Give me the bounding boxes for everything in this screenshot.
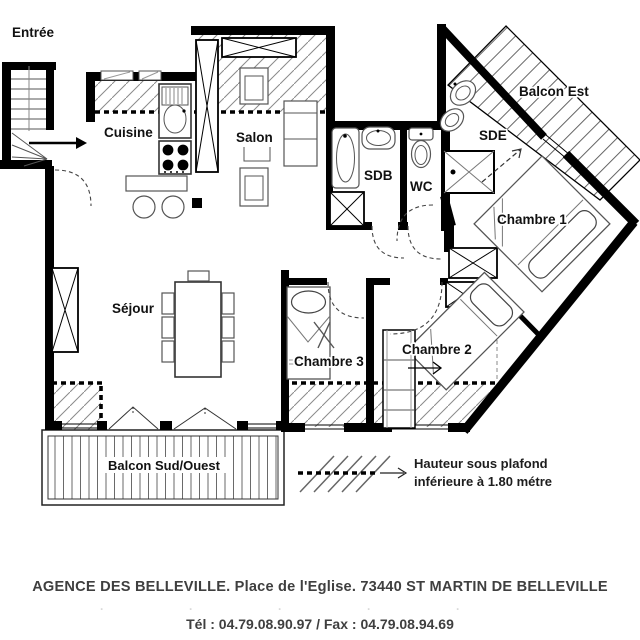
label-salon: Salon [236,130,273,145]
label-chambre2: Chambre 2 [402,342,472,357]
sofa [284,101,317,166]
low-ceiling-dotted-lines [52,112,500,428]
dining-area [52,268,234,377]
sdb-door [372,226,404,258]
kitchen-counter [126,176,187,191]
floor-plan-drawing: Hauteur sous plafond inférieure à 1.80 m… [0,0,640,572]
label-sdb: SDB [364,168,393,183]
stool [162,196,184,218]
chair [222,341,234,362]
legend-text-line1: Hauteur sous plafond [414,456,548,471]
label-chambre1: Chambre 1 [497,212,567,227]
armchair [240,68,268,104]
label-cuisine: Cuisine [104,125,153,140]
side-table [244,147,270,161]
label-sejour: Séjour [112,301,155,316]
label-wc: WC [410,179,433,194]
legend-text-line2: inférieure à 1.80 métre [414,474,552,489]
legend: Hauteur sous plafond inférieure à 1.80 m… [298,456,552,492]
chair [162,293,174,314]
chair [162,341,174,362]
agency-phone-fax-text: Tél : 04.79.08.90.97 / Fax : 04.79.08.94… [0,616,640,632]
chair [222,293,234,314]
pillow [292,291,326,313]
label-sde: SDE [479,128,507,143]
label-chambre3: Chambre 3 [294,354,364,369]
faded-ghost-text: ····· [100,602,560,614]
toilet [412,141,431,168]
chair [162,317,174,338]
entry-door [55,170,91,206]
wc-door [408,226,441,259]
label-balcon-sud-ouest: Balcon Sud/Ouest [108,458,221,473]
agency-address-text: AGENCE DES BELLEVILLE. Place de l'Eglise… [0,579,640,595]
chambre3-door [328,282,364,318]
stool [133,196,155,218]
staircase [0,62,87,169]
chair [222,317,234,338]
wc-room [409,128,433,168]
floor-plan-page: Hauteur sous plafond inférieure à 1.80 m… [0,0,640,640]
sink-unit [159,84,191,138]
dining-table [175,282,221,377]
label-balcon-est: Balcon Est [519,84,589,99]
label-entree: Entrée [12,25,55,40]
chair [188,271,209,281]
